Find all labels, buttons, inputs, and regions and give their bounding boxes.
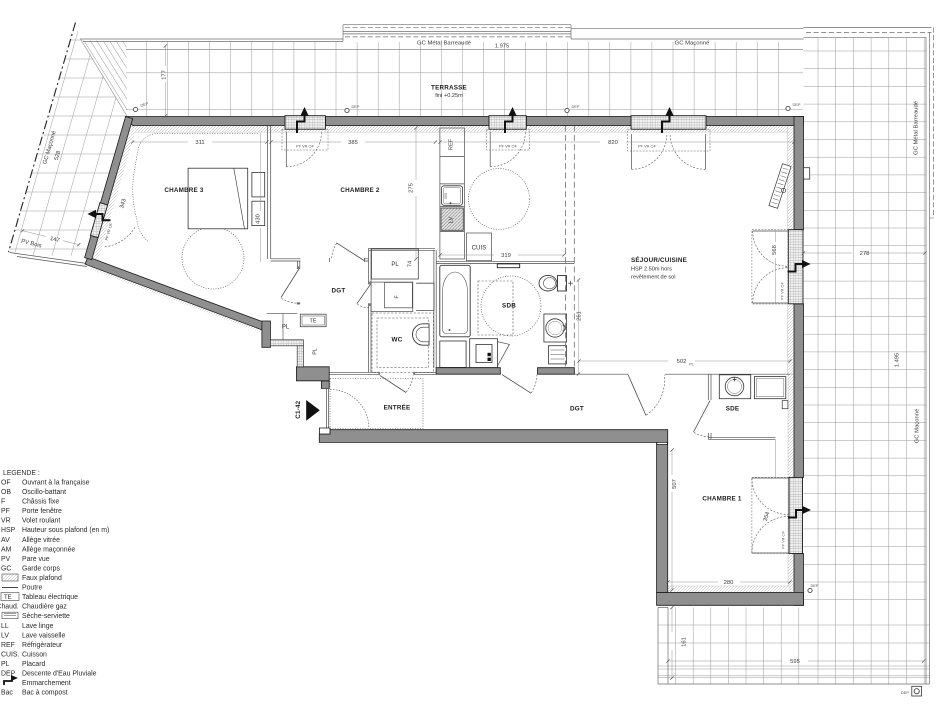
svg-text:820: 820 <box>608 140 618 146</box>
svg-text:507: 507 <box>672 479 678 489</box>
svg-text:CHAMBRE 3: CHAMBRE 3 <box>164 187 204 194</box>
svg-text:DEP: DEP <box>901 690 909 695</box>
svg-text:Châssis fixe: Châssis fixe <box>22 499 59 506</box>
svg-text:PL: PL <box>1 661 10 668</box>
svg-text:GC Maçonné: GC Maçonné <box>675 41 710 47</box>
svg-text:177: 177 <box>162 70 168 80</box>
svg-text:SDB: SDB <box>502 303 516 310</box>
svg-text:Poutre: Poutre <box>22 585 42 592</box>
svg-text:Descente d'Eau Pluviale: Descente d'Eau Pluviale <box>22 671 97 678</box>
svg-text:Allège maçonnée: Allège maçonnée <box>22 546 75 553</box>
svg-text:Réfrigérateur: Réfrigérateur <box>22 642 63 649</box>
svg-text:Ouvrant à la française: Ouvrant à la française <box>22 480 90 487</box>
svg-text:SÉJOUR/CUISINE: SÉJOUR/CUISINE <box>631 255 687 264</box>
svg-text:Bac: Bac <box>1 690 13 697</box>
svg-text:HSP 2.50m hors: HSP 2.50m hors <box>631 267 672 273</box>
svg-text:Volet roulant: Volet roulant <box>22 518 60 525</box>
svg-text:AV: AV <box>1 537 10 544</box>
svg-text:GC Métal Barreaudé: GC Métal Barreaudé <box>914 100 920 155</box>
svg-text:CUIS: CUIS <box>472 245 487 252</box>
svg-text:Bac à compost: Bac à compost <box>22 690 68 697</box>
svg-text:261: 261 <box>577 311 583 321</box>
svg-text:CHAMBRE 1: CHAMBRE 1 <box>702 496 742 503</box>
svg-text:Sèche-serviette: Sèche-serviette <box>22 613 70 620</box>
svg-text:DEP: DEP <box>572 104 580 109</box>
svg-text:PL: PL <box>689 362 695 367</box>
svg-text:Allège vitrée: Allège vitrée <box>22 537 60 544</box>
svg-text:OF: OF <box>1 480 11 487</box>
svg-text:AM: AM <box>1 546 12 553</box>
svg-text:568: 568 <box>772 245 778 255</box>
svg-text:430: 430 <box>256 214 262 224</box>
svg-text:Lave linge: Lave linge <box>22 623 54 630</box>
svg-text:Tableau électrique: Tableau électrique <box>22 594 78 601</box>
svg-text:REF: REF <box>1 642 15 649</box>
svg-text:DGT: DGT <box>332 288 346 295</box>
svg-text:LV: LV <box>1 632 9 639</box>
svg-text:Cuisson: Cuisson <box>22 651 47 658</box>
svg-text:PF VR OF: PF VR OF <box>296 144 315 149</box>
svg-text:fini +0.25m: fini +0.25m <box>435 93 463 99</box>
svg-text:Lave vaisselle: Lave vaisselle <box>22 632 65 639</box>
svg-text:DEP: DEP <box>811 583 819 588</box>
svg-text:Pare vue: Pare vue <box>22 556 50 563</box>
svg-text:CUIS.: CUIS. <box>1 651 19 658</box>
svg-text:GC Maçonné: GC Maçonné <box>915 408 921 443</box>
svg-text:revêtement de sol: revêtement de sol <box>631 275 675 281</box>
svg-text:275: 275 <box>409 183 415 193</box>
svg-text:311: 311 <box>195 140 204 146</box>
svg-text:PL: PL <box>391 262 399 268</box>
svg-text:Chaudière gaz: Chaudière gaz <box>22 604 67 611</box>
svg-text:GC Métal Barreaudé: GC Métal Barreaudé <box>417 41 472 47</box>
svg-text:595: 595 <box>790 659 800 665</box>
svg-text:DEP: DEP <box>352 104 360 109</box>
svg-text:GC: GC <box>1 566 11 573</box>
svg-text:LV: LV <box>449 217 455 224</box>
svg-text:PF VR OF: PF VR OF <box>781 530 786 549</box>
svg-text:SDE: SDE <box>726 406 740 413</box>
svg-text:PF VR OF: PF VR OF <box>638 144 657 149</box>
svg-text:REF: REF <box>449 138 455 150</box>
svg-text:TERRASSE: TERRASSE <box>431 85 467 92</box>
svg-text:161: 161 <box>682 637 688 647</box>
svg-text:PF: PF <box>1 508 10 515</box>
svg-text:Faux plafond: Faux plafond <box>22 575 62 582</box>
svg-text:PL: PL <box>313 348 319 355</box>
svg-text:319: 319 <box>501 253 511 259</box>
svg-text:TE: TE <box>4 595 12 601</box>
svg-text:PF VR OF: PF VR OF <box>780 281 785 300</box>
svg-text:C1-42: C1-42 <box>295 400 302 418</box>
svg-text:1.495: 1.495 <box>895 353 901 368</box>
svg-text:74: 74 <box>408 260 414 267</box>
svg-text:DGT: DGT <box>570 406 584 413</box>
svg-text:DEP: DEP <box>793 102 801 107</box>
svg-text:PL: PL <box>282 325 290 331</box>
svg-text:1.975: 1.975 <box>495 44 510 50</box>
svg-text:280: 280 <box>724 580 734 586</box>
svg-text:LEGENDE :: LEGENDE : <box>3 470 40 477</box>
svg-text:CHAMBRE 2: CHAMBRE 2 <box>340 187 380 194</box>
svg-text:F: F <box>1 499 5 506</box>
svg-text:278: 278 <box>860 251 870 257</box>
svg-text:LL: LL <box>1 623 9 630</box>
svg-text:385: 385 <box>348 140 358 146</box>
svg-text:Garde corps: Garde corps <box>22 566 60 573</box>
svg-text:Porte fenêtre: Porte fenêtre <box>22 508 62 515</box>
svg-text:OB: OB <box>1 489 11 496</box>
svg-text:Oscillo-battant: Oscillo-battant <box>22 489 66 496</box>
svg-text:Placard: Placard <box>22 661 46 668</box>
svg-text:ENTRÉE: ENTRÉE <box>384 403 411 412</box>
svg-text:WC: WC <box>392 337 403 344</box>
svg-text:PV: PV <box>1 556 11 563</box>
svg-text:305: 305 <box>443 193 448 200</box>
svg-text:502: 502 <box>677 359 687 365</box>
svg-text:Chaud.: Chaud. <box>0 604 19 611</box>
svg-text:TE: TE <box>310 319 317 325</box>
svg-text:Hauteur sous plafond (en m): Hauteur sous plafond (en m) <box>22 527 109 534</box>
svg-text:Emmarchement: Emmarchement <box>22 680 71 687</box>
svg-text:VR: VR <box>1 518 11 525</box>
svg-text:HSP: HSP <box>1 527 16 534</box>
svg-text:PF VR OF: PF VR OF <box>499 144 518 149</box>
